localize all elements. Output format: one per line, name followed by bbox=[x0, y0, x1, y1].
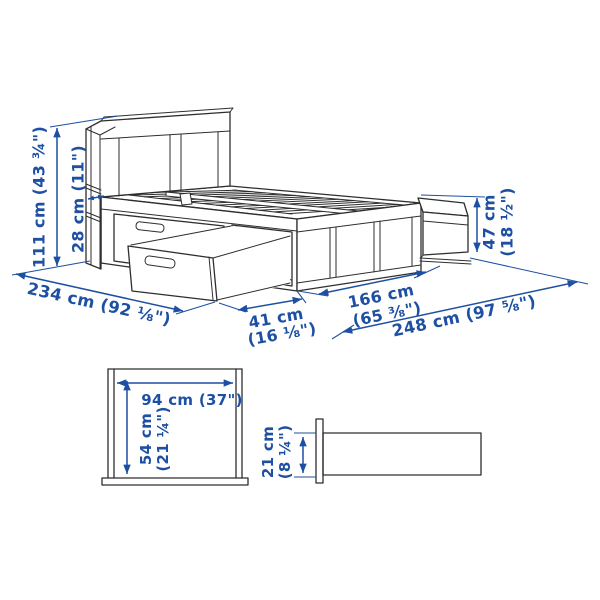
front-view-left-post bbox=[108, 369, 114, 478]
label-side-height-line1: 47 cm bbox=[480, 194, 499, 250]
diagram-svg: 111 cm (43 ¾") 28 cm (11") 234 cm (92 ⅛"… bbox=[0, 0, 600, 600]
label-drawer-height-line1: 54 cm bbox=[137, 413, 155, 465]
profile-rail bbox=[323, 433, 481, 475]
label-rail-height-line2: (8 ¼") bbox=[276, 425, 294, 480]
footboard-face bbox=[297, 203, 421, 291]
beam-bracket bbox=[180, 193, 192, 205]
side-profile-view-drawing bbox=[316, 419, 481, 483]
ext-41-right bbox=[297, 291, 306, 303]
foot-drawer-base bbox=[420, 258, 471, 264]
label-headboard-depth: 28 cm (11") bbox=[69, 145, 88, 253]
label-drawer-width: 94 cm (37") bbox=[141, 391, 243, 409]
ext-248-right bbox=[470, 258, 588, 284]
ext-height-bottom bbox=[12, 261, 90, 275]
label-total-height: 111 cm (43 ¾") bbox=[30, 126, 49, 268]
bed-isometric-drawing bbox=[86, 108, 471, 301]
ext-234-right bbox=[176, 302, 215, 314]
label-rail-height-line1: 21 cm bbox=[259, 426, 277, 478]
drawer-front-view-drawing bbox=[102, 369, 248, 485]
profile-post bbox=[316, 419, 323, 483]
label-drawer-height-line2: (21 ¼") bbox=[154, 406, 172, 471]
product-dimension-diagram: 111 cm (43 ¾") 28 cm (11") 234 cm (92 ⅛"… bbox=[0, 0, 600, 600]
ext-47-top bbox=[421, 195, 485, 197]
ext-41-left bbox=[219, 303, 246, 312]
label-side-height-line2: (18 ½") bbox=[498, 187, 517, 256]
front-view-base-bar bbox=[102, 478, 248, 485]
foot-drawer-side bbox=[423, 212, 468, 255]
front-view-right-post bbox=[236, 369, 242, 478]
